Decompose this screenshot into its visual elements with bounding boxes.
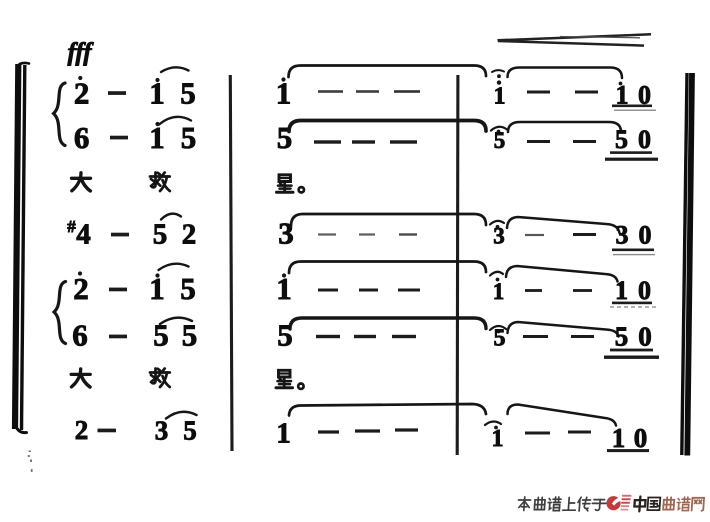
svg-text:0: 0	[638, 276, 651, 305]
svg-text:1: 1	[612, 423, 626, 453]
svg-text:1: 1	[494, 84, 506, 110]
svg-text:1: 1	[492, 426, 504, 452]
svg-text:5: 5	[180, 271, 196, 306]
svg-text:2: 2	[74, 76, 90, 111]
svg-text:5: 5	[615, 125, 628, 154]
svg-text:0: 0	[639, 221, 652, 250]
svg-text:5: 5	[181, 120, 197, 155]
svg-text:3: 3	[493, 224, 505, 249]
svg-text:#: #	[67, 217, 76, 236]
svg-text:fff: fff	[67, 39, 94, 66]
svg-text:5: 5	[615, 322, 629, 352]
svg-text:1: 1	[276, 418, 291, 450]
svg-text:5: 5	[494, 326, 506, 352]
svg-text:0: 0	[634, 423, 648, 453]
svg-text:1: 1	[615, 276, 628, 305]
svg-text:5: 5	[183, 416, 197, 446]
svg-text:2: 2	[182, 219, 197, 251]
svg-text:6: 6	[74, 120, 90, 155]
svg-text:2: 2	[75, 415, 89, 445]
svg-text:0: 0	[638, 322, 652, 352]
svg-text:6: 6	[72, 318, 88, 353]
svg-text:5: 5	[494, 128, 506, 153]
svg-text:5: 5	[182, 318, 198, 353]
svg-text:1: 1	[493, 279, 505, 304]
svg-text:5: 5	[180, 76, 196, 111]
svg-text:5: 5	[153, 219, 168, 251]
svg-text:4: 4	[76, 219, 91, 251]
svg-text:3: 3	[616, 221, 629, 250]
svg-text:0: 0	[638, 125, 651, 154]
svg-text:2: 2	[73, 271, 89, 306]
svg-text:3: 3	[155, 416, 169, 446]
